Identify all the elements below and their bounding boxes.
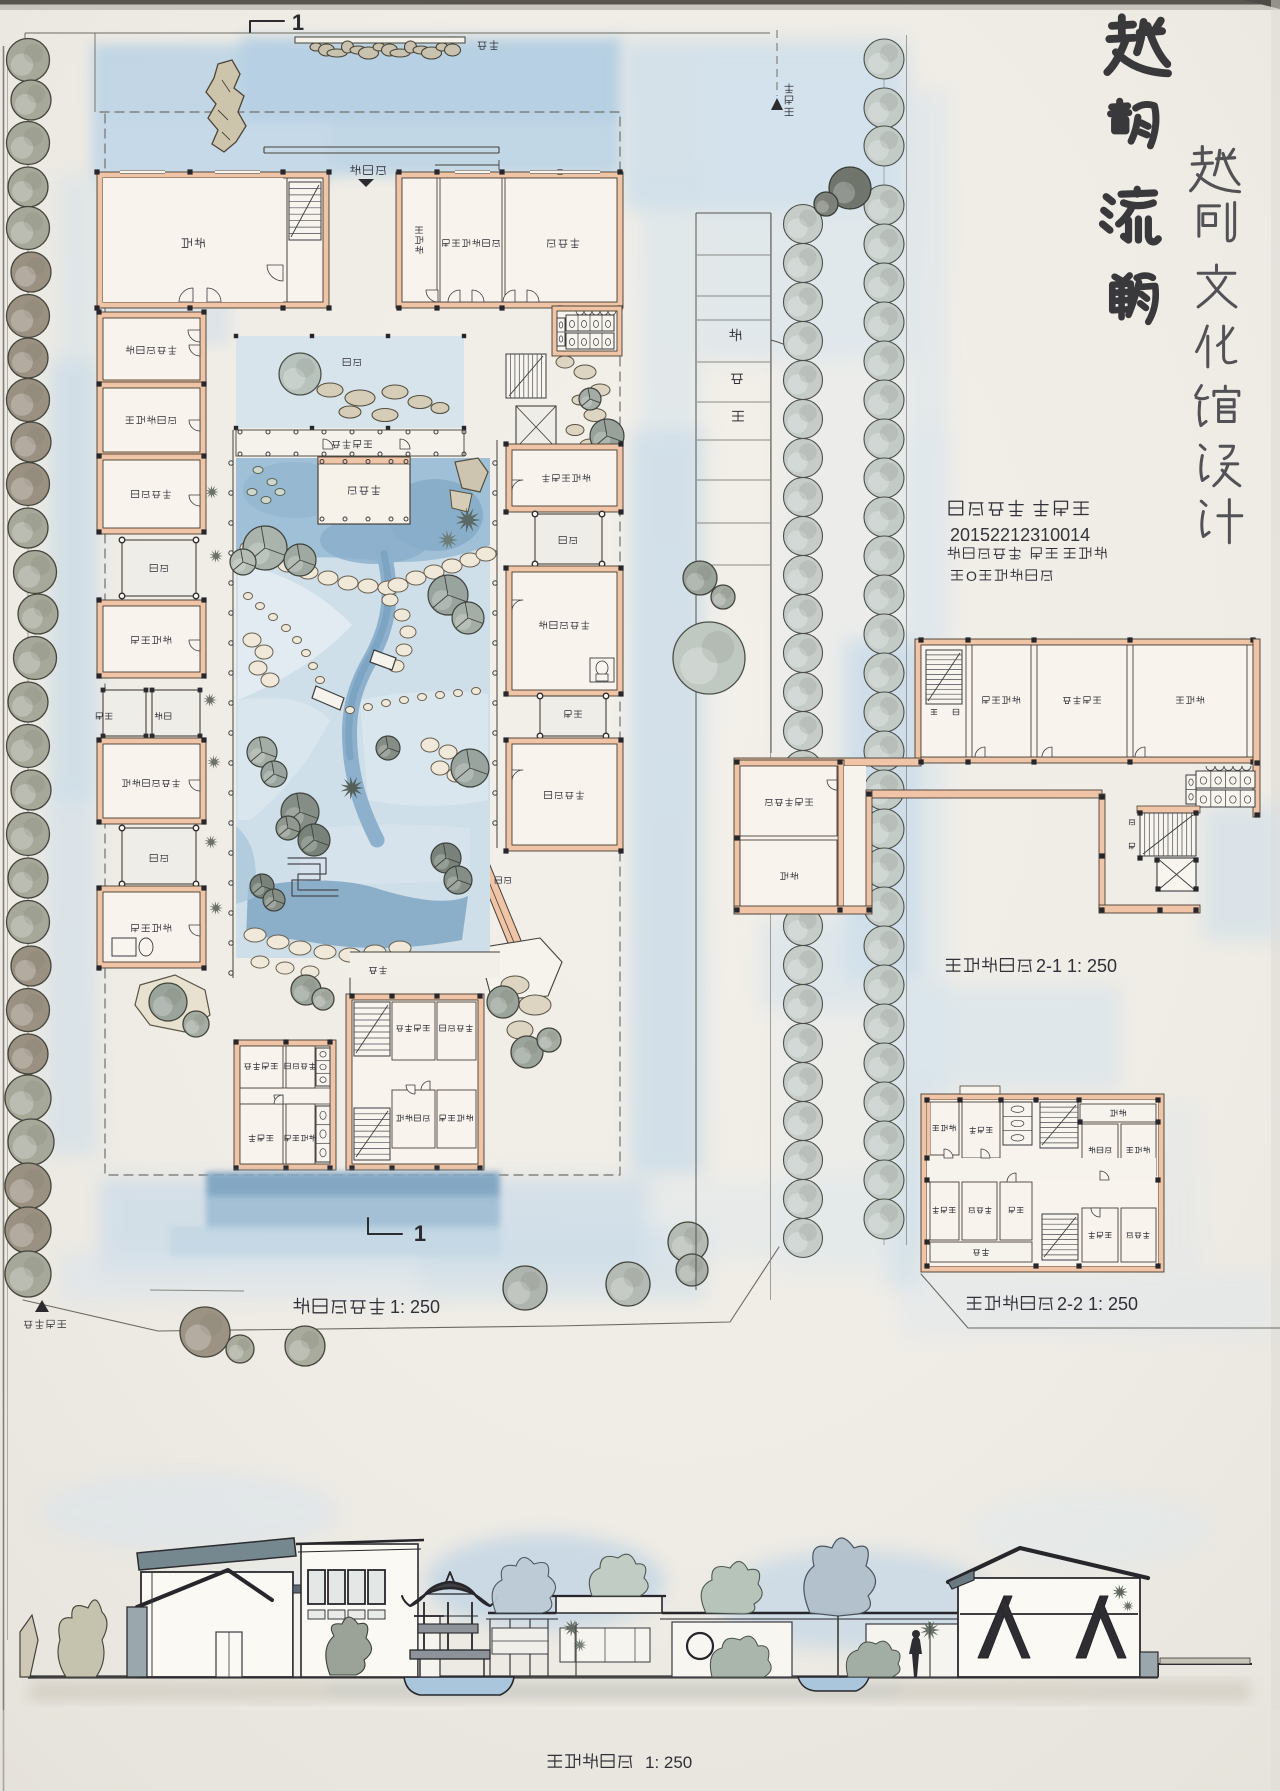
svg-text:O: O [966,568,977,584]
svg-text:2-1 1: 250: 2-1 1: 250 [1036,956,1117,976]
svg-text::: : [1018,546,1022,561]
svg-text:2-2 1: 250: 2-2 1: 250 [1057,1294,1138,1314]
svg-text:20152212310014: 20152212310014 [950,525,1090,545]
svg-text:1: 250: 1: 250 [390,1297,440,1317]
svg-text:1: 1 [414,1221,426,1246]
svg-text:1: 1 [292,10,304,35]
svg-text:1: 250: 1: 250 [645,1753,692,1772]
